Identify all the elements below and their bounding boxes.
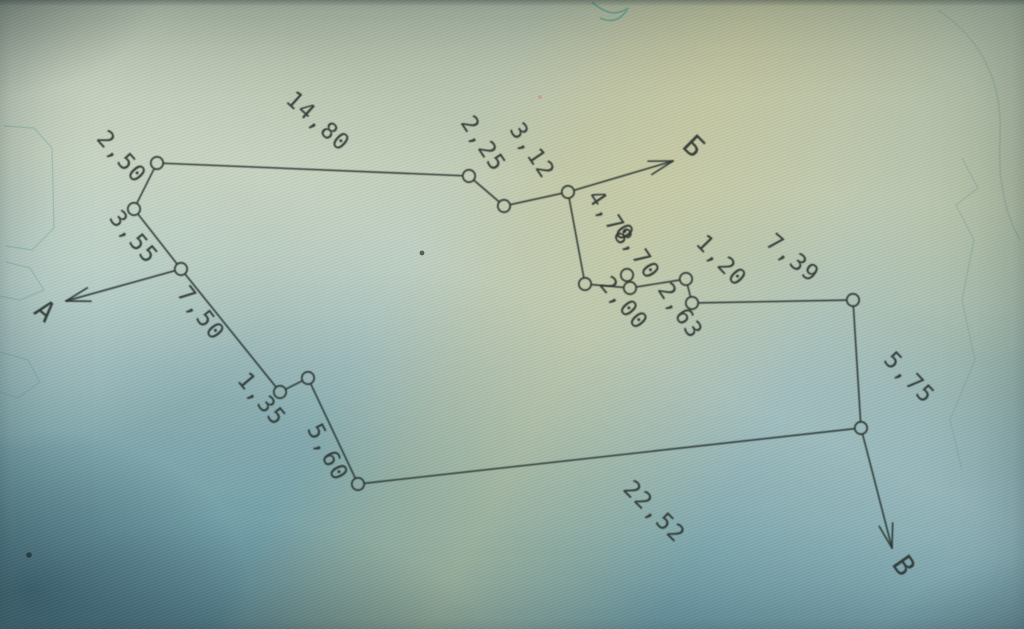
topright-contour-mark bbox=[938, 10, 1020, 240]
arrow-shaft-ve bbox=[863, 435, 892, 548]
left-contour-mark bbox=[0, 262, 44, 300]
distance-label: 7,39 bbox=[761, 229, 825, 288]
arrowhead-ve-icon bbox=[892, 523, 893, 548]
right-edge-jagged-mark bbox=[950, 158, 978, 470]
survey-node-n14 bbox=[274, 386, 286, 398]
distance-label: 22,52 bbox=[618, 476, 691, 549]
survey-node-n16 bbox=[352, 478, 364, 490]
edge-n10-n11 bbox=[688, 286, 691, 296]
survey-node-n10 bbox=[680, 273, 692, 285]
traverse-diagram: 2,503,557,501,355,6022,5214,802,253,124,… bbox=[0, 0, 1024, 629]
ink-speck bbox=[26, 552, 32, 558]
survey-node-n2 bbox=[128, 203, 140, 215]
survey-node-n4 bbox=[463, 170, 475, 182]
distance-label: 14,80 bbox=[280, 86, 354, 157]
edge-n16-n13 bbox=[365, 429, 854, 483]
survey-node-n1 bbox=[151, 157, 163, 169]
survey-node-n7 bbox=[579, 278, 591, 290]
arrowhead-a-icon bbox=[66, 288, 87, 301]
arrowhead-be-icon bbox=[652, 161, 673, 174]
distance-label: 7,50 bbox=[171, 281, 229, 345]
survey-node-n13 bbox=[855, 422, 867, 434]
edge-n6-n7 bbox=[569, 199, 583, 277]
edge-n11-n12 bbox=[699, 300, 846, 303]
survey-node-n3 bbox=[175, 263, 187, 275]
survey-node-n15 bbox=[302, 372, 314, 384]
ink-drawing: 2,503,557,501,355,6022,5214,802,253,124,… bbox=[28, 86, 940, 581]
survey-node-n5 bbox=[498, 200, 510, 212]
distance-label: 1,20 bbox=[690, 230, 751, 292]
edge-n5-n6 bbox=[511, 193, 561, 204]
distance-label: 2,63 bbox=[652, 278, 708, 343]
survey-node-n12 bbox=[847, 294, 859, 306]
left-contour-mark bbox=[0, 352, 40, 398]
distance-label: 5,60 bbox=[301, 420, 353, 486]
distance-label: 1,35 bbox=[232, 368, 291, 432]
edge-n12-n13 bbox=[853, 307, 860, 421]
edge-n4-n5 bbox=[474, 181, 498, 202]
distance-label: 5,75 bbox=[878, 347, 939, 409]
ink-speck bbox=[538, 95, 542, 99]
top-green-scribble bbox=[592, 2, 628, 20]
survey-node-n6 bbox=[562, 186, 574, 198]
arrow-shaft-be bbox=[575, 161, 673, 190]
ink-speck bbox=[420, 251, 425, 256]
edge-n14-n15 bbox=[286, 381, 301, 389]
distance-label: 2,25 bbox=[455, 111, 511, 176]
endpoint-label-a: А bbox=[28, 293, 62, 329]
left-contour-mark bbox=[4, 126, 54, 250]
distance-label: 3,12 bbox=[504, 118, 560, 183]
faint-map-marks bbox=[0, 2, 1020, 558]
endpoint-label-be: Б bbox=[676, 129, 711, 164]
survey-node-n8 bbox=[621, 269, 633, 281]
endpoint-label-ve: В bbox=[885, 549, 922, 582]
edge-n1-n4 bbox=[164, 163, 462, 175]
paper-photo-background: 2,503,557,501,355,6022,5214,802,253,124,… bbox=[0, 0, 1024, 629]
arrow-shaft-a bbox=[66, 271, 174, 301]
distance-label: 2,50 bbox=[91, 126, 151, 189]
